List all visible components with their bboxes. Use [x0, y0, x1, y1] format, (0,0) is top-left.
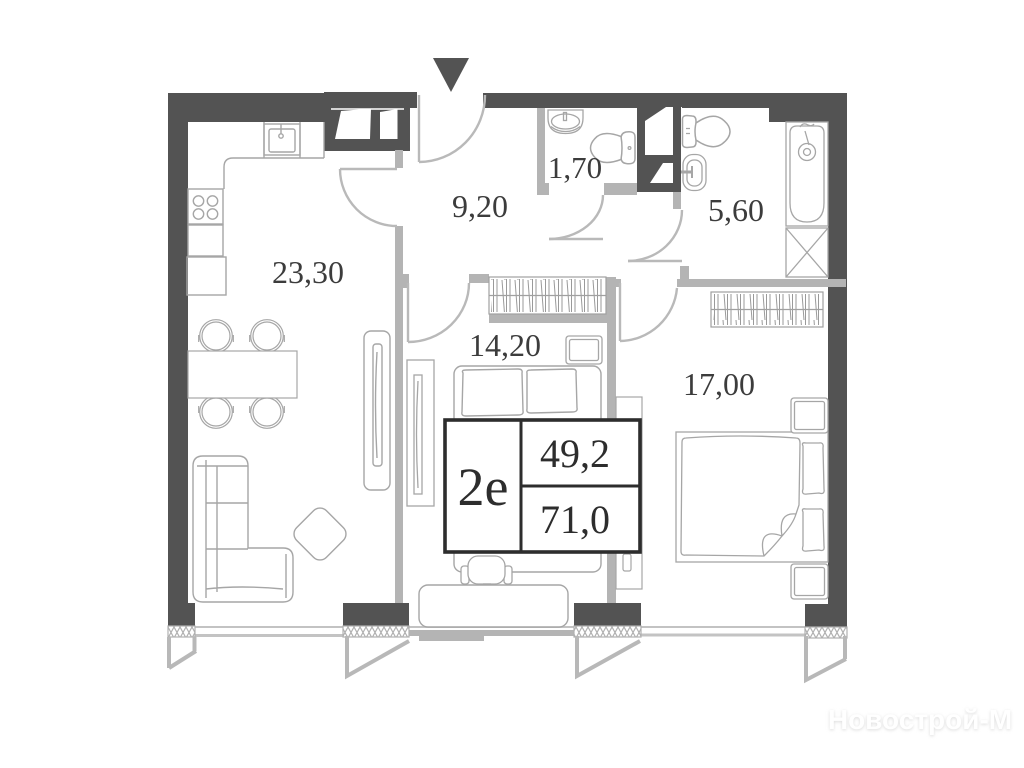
svg-text:14,20: 14,20: [469, 327, 541, 363]
svg-text:9,20: 9,20: [452, 188, 508, 224]
svg-text:Новострой-М: Новострой-М: [828, 704, 1012, 735]
svg-text:23,30: 23,30: [272, 254, 344, 290]
svg-text:5,60: 5,60: [708, 192, 764, 228]
svg-text:1,70: 1,70: [548, 150, 602, 185]
svg-text:17,00: 17,00: [683, 366, 755, 402]
svg-text:71,0: 71,0: [540, 497, 610, 542]
svg-text:49,2: 49,2: [540, 431, 610, 476]
svg-text:2e: 2e: [458, 457, 509, 517]
